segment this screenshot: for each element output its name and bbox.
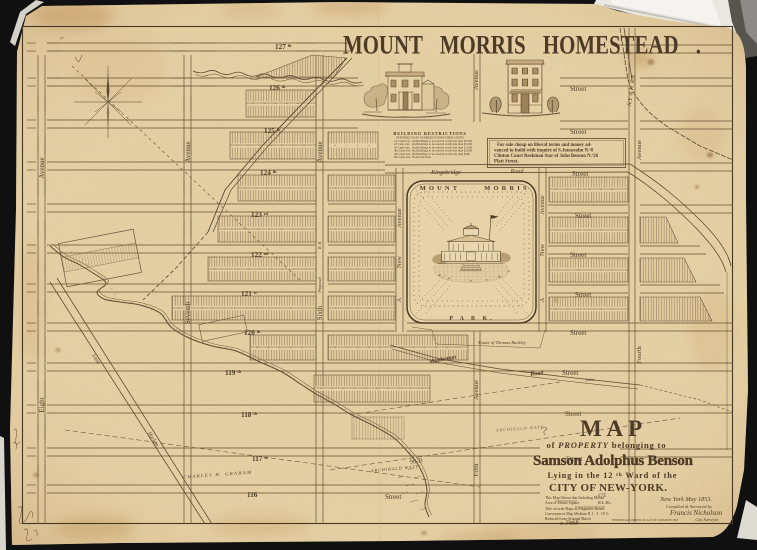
- svg-text:Estate of Thomas Buckley: Estate of Thomas Buckley: [477, 340, 527, 345]
- svg-text:Street: Street: [572, 170, 588, 178]
- svg-text:Street: Street: [570, 128, 586, 136]
- svg-text:Title records Maps in Magdalen: Title records Maps in Magdalen Bened: [545, 507, 604, 511]
- svg-text:New: New: [539, 244, 546, 256]
- svg-text:New: New: [396, 256, 403, 268]
- svg-text:MAP: MAP: [580, 416, 642, 441]
- svg-text:ENTERED ACCORDING TO ACT OF CO: ENTERED ACCORDING TO ACT OF CONGRESS 185…: [612, 519, 679, 522]
- svg-text:Proposed: Proposed: [317, 276, 322, 293]
- svg-text:Avenue: Avenue: [396, 208, 403, 228]
- svg-text:£75: £75: [598, 493, 606, 499]
- svg-text:No Restrictions.: No Restrictions.: [412, 155, 432, 159]
- svg-text:Avenue: Avenue: [473, 70, 480, 90]
- svg-text:Avenue: Avenue: [316, 141, 324, 162]
- svg-text:Road: Road: [510, 169, 525, 175]
- svg-text:of PROPERTY belonging to: of PROPERTY belonging to: [547, 440, 666, 450]
- svg-text:A: A: [396, 297, 403, 302]
- svg-text:Avenue: Avenue: [539, 195, 546, 215]
- svg-text:Fourth: Fourth: [636, 346, 643, 364]
- svg-text:Street: Street: [570, 329, 586, 337]
- svg-text:MOUNT: MOUNT: [420, 185, 461, 192]
- svg-text:Lane: Lane: [584, 377, 595, 383]
- svg-text:CITY OF NEW-YORK.: CITY OF NEW-YORK.: [549, 482, 667, 494]
- svg-text:Street: Street: [570, 85, 586, 93]
- svg-text:Street: Street: [575, 212, 591, 220]
- svg-text:Street: Street: [575, 291, 591, 299]
- svg-text:Fifth: Fifth: [473, 463, 480, 477]
- svg-text:Avenue: Avenue: [38, 157, 46, 178]
- svg-text:This Map Shows that Including: This Map Shows that Including Mount: [545, 496, 605, 500]
- svg-text:MOUNT MORRIS HOMESTEAD .: MOUNT MORRIS HOMESTEAD .: [343, 31, 701, 60]
- svg-text:Francis Nicholson: Francis Nicholson: [669, 509, 722, 517]
- svg-text:Street: Street: [562, 369, 578, 377]
- svg-text:Street: Street: [385, 493, 401, 501]
- svg-text:BUILDING RESTRICTIONS: BUILDING RESTRICTIONS: [393, 131, 466, 136]
- svg-text:Sixth: Sixth: [316, 305, 324, 320]
- svg-text:Avenue: Avenue: [184, 141, 192, 162]
- svg-text:R.L.Ho.: R.L.Ho.: [597, 500, 612, 505]
- svg-text:City Surveyor: City Surveyor: [695, 517, 719, 522]
- svg-text:Map B: Map B: [566, 519, 579, 524]
- svg-text:vanced to build with inquire o: vanced to build with inquire of S.Jonass…: [494, 148, 594, 154]
- svg-text:MORRIS: MORRIS: [484, 185, 529, 192]
- svg-text:6th Class lots.: 6th Class lots.: [394, 155, 411, 159]
- svg-text:Seventh: Seventh: [184, 301, 192, 324]
- svg-text:R. R.: R. R.: [317, 241, 322, 250]
- svg-text:Street: Street: [565, 410, 581, 418]
- svg-text:For sale cheap on liberal term: For sale cheap on liberal terms and mone…: [497, 143, 592, 148]
- svg-text:Eight: Eight: [38, 397, 46, 412]
- svg-text:A: A: [539, 297, 546, 302]
- svg-text:Clinton Court Beekman Star of: Clinton Court Beekman Star of John Benso…: [494, 153, 599, 159]
- svg-text:116: 116: [247, 491, 258, 499]
- svg-text:Samson Adolphus Benson: Samson Adolphus Benson: [533, 453, 694, 469]
- svg-text:Area of Morris Square: Area of Morris Square: [545, 501, 580, 505]
- svg-text:Kingsbridge: Kingsbridge: [430, 170, 461, 176]
- svg-text:Platt Street.: Platt Street.: [494, 160, 518, 165]
- svg-text:New York May 1853.: New York May 1853.: [659, 496, 712, 503]
- svg-text:Avenue: Avenue: [473, 380, 480, 400]
- svg-text:Street: Street: [570, 251, 586, 259]
- svg-text:Lying in the 12 th Ward of the: Lying in the 12 th Ward of the: [548, 471, 677, 480]
- svg-text:P A R K.: P A R K.: [449, 316, 494, 322]
- svg-text:Avenue: Avenue: [636, 140, 643, 160]
- svg-text:Conveyances Map Medium B 1: Conveyances Map Medium B 1 . 3 . 18 ½: [545, 512, 609, 516]
